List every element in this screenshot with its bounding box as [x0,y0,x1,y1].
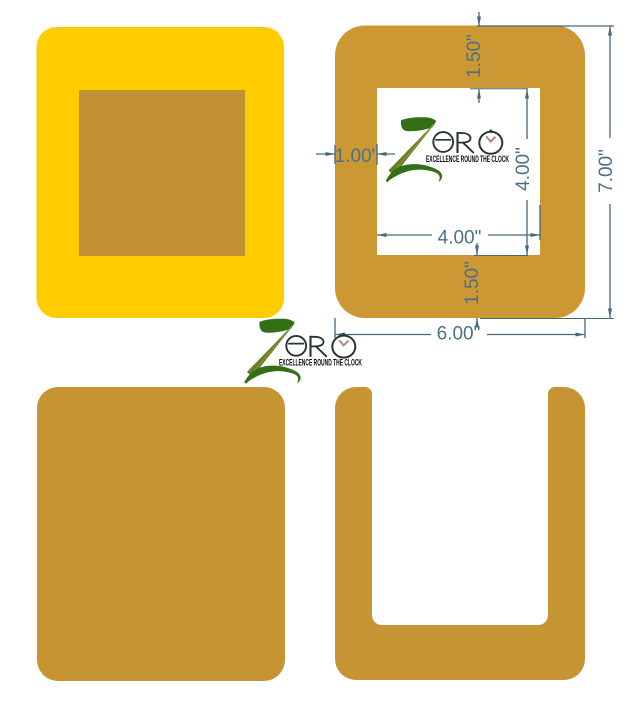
svg-text:4.00": 4.00" [438,228,482,249]
svg-text:6.00": 6.00" [437,324,481,345]
svg-text:4.00": 4.00" [513,147,534,191]
svg-text:7.00": 7.00" [596,149,617,193]
svg-text:1.50": 1.50" [462,261,483,305]
svg-text:1.00": 1.00" [335,146,379,167]
svg-text:1.50": 1.50" [464,34,485,78]
